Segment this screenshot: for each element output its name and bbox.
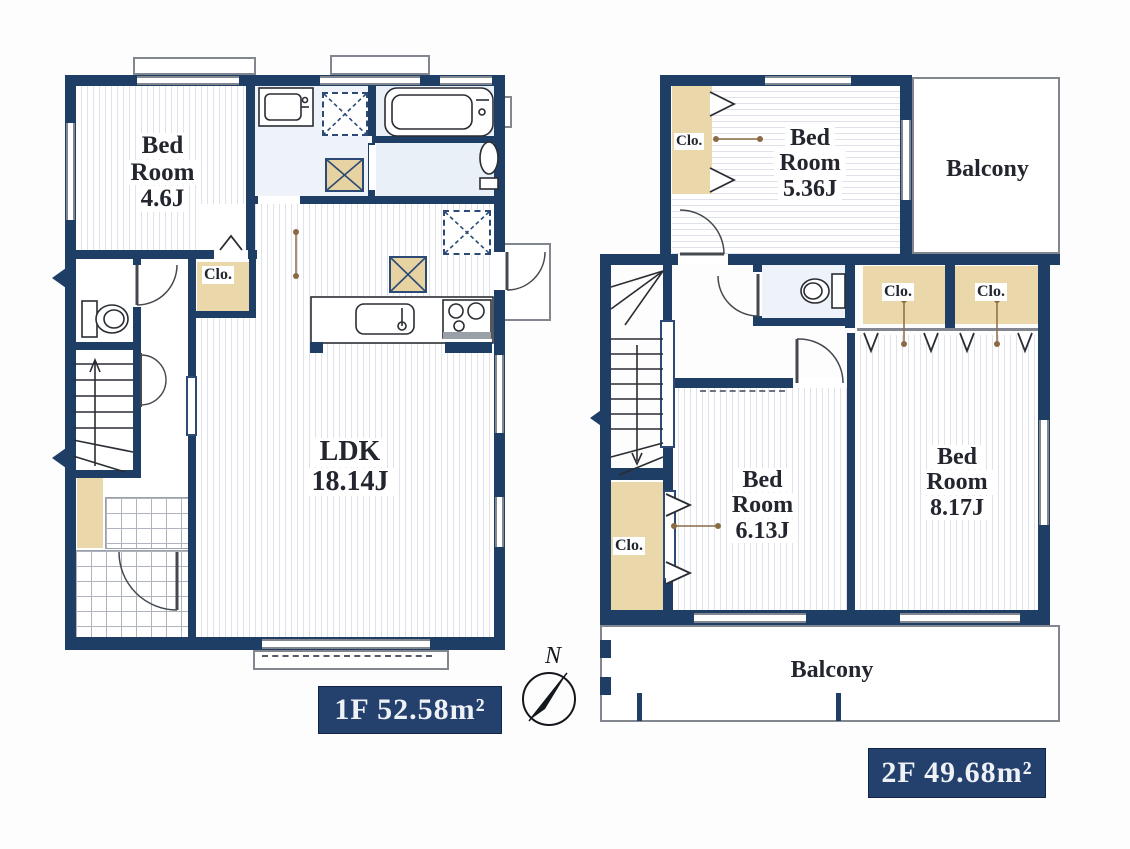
floor-hatch-x-icon: [389, 256, 427, 293]
door-opening: [494, 252, 505, 290]
shoe-cabinet: [77, 473, 103, 548]
room-label-line: 6.13J: [731, 519, 795, 543]
balcony-post: [637, 693, 642, 721]
double-door-arc: [139, 351, 167, 409]
kitchen-counter-icon: [310, 296, 494, 346]
counter-base: [310, 342, 323, 353]
wall: [600, 677, 611, 695]
wall: [188, 259, 196, 650]
closet-label-2f-top: Clo.: [674, 133, 704, 150]
room-label-line: 4.6J: [136, 186, 190, 212]
room-label-bedroom-1f: Bed Room 4.6J: [100, 133, 225, 212]
window: [440, 76, 492, 85]
door-arc: [793, 333, 847, 387]
wall: [600, 640, 611, 658]
folding-door-icon: [1016, 331, 1034, 355]
lavatory-icon: [477, 138, 501, 192]
vent-icon: [52, 268, 66, 288]
closet-label-2f-bottom: Clo.: [613, 537, 645, 555]
room-label-bedroom613: Bed Room 6.13J: [705, 468, 820, 543]
stairs-icon: [73, 348, 133, 472]
folding-door-icon: [708, 166, 738, 194]
door-arc: [505, 250, 547, 292]
room-label-line: Bed: [737, 468, 787, 492]
folding-door-icon: [664, 560, 694, 586]
floor1-area-badge: 1F 52.58m²: [318, 686, 502, 734]
closet-label-1f: Clo.: [202, 266, 234, 284]
balcony-label-top: Balcony: [925, 157, 1050, 181]
wall: [847, 333, 855, 610]
floor2-area-badge: 2F 49.68m²: [868, 748, 1046, 798]
door-arc: [676, 206, 728, 258]
balcony-label-text: Balcony: [941, 157, 1034, 181]
room-label-bedroom817: Bed Room 8.17J: [898, 445, 1016, 520]
wall: [663, 378, 793, 388]
stairs-icon: [611, 265, 663, 475]
door-arc: [117, 546, 183, 616]
closet-rail-dashes: [700, 390, 785, 392]
room-label-line: Room: [727, 493, 798, 517]
compass-label: N: [544, 643, 563, 669]
closet-label-2f-mid-right: Clo.: [975, 283, 1007, 301]
wall: [368, 83, 376, 136]
vent-icon: [52, 448, 66, 468]
floorplan: Bed Room 4.6J Clo. LDK 18.14J 1F 52.58m²…: [0, 0, 1130, 849]
folding-door-icon: [664, 492, 694, 518]
room-label-ldk: LDK 18.14J: [285, 438, 415, 496]
washer-x-icon: [322, 92, 368, 136]
folding-door-icon: [862, 331, 880, 355]
balcony-post: [836, 693, 841, 721]
entrance-tile-floor: [105, 497, 192, 549]
vent-icon: [590, 408, 604, 428]
wall: [600, 254, 611, 625]
closet-label-2f-mid-left: Clo.: [882, 283, 914, 301]
door-arc: [718, 272, 762, 318]
sliding-door: [186, 376, 197, 436]
room-label-line: 8.17J: [925, 496, 989, 520]
floor-hatch-x-icon: [325, 158, 364, 192]
closet-front-line: [857, 328, 1038, 331]
window: [495, 497, 504, 547]
room-label-line: Room: [126, 160, 200, 186]
wall: [753, 318, 855, 326]
wall: [660, 75, 671, 265]
counter-base: [445, 342, 492, 353]
wall: [249, 259, 256, 316]
balcony-label-bottom: Balcony: [772, 658, 892, 682]
eaves-outline: [133, 57, 256, 75]
door-axis-marker: [899, 296, 909, 348]
window: [262, 639, 430, 649]
window: [900, 613, 1020, 623]
toilet-icon: [798, 271, 848, 313]
sink-icon: [258, 87, 314, 127]
window: [320, 76, 420, 85]
folding-door-icon: [922, 331, 940, 355]
folding-door-icon: [708, 90, 738, 118]
door-opening: [369, 145, 375, 190]
wall: [600, 254, 1060, 265]
room-label-line: 5.36J: [778, 177, 842, 201]
wall: [65, 75, 505, 86]
wall: [246, 75, 255, 259]
room-label-line: Room: [774, 151, 845, 175]
door-axis-marker: [992, 296, 1002, 348]
room-label-line: LDK: [315, 438, 386, 467]
room-label-line: Bed: [137, 133, 189, 159]
room-label-line: 18.14J: [307, 468, 394, 497]
wall: [196, 311, 256, 318]
room-label-line: Bed: [785, 126, 835, 150]
bathtub-icon: [383, 86, 495, 138]
terrace-dashes: [262, 655, 432, 657]
toilet-icon: [80, 293, 132, 345]
window: [495, 355, 504, 433]
room-label-line: Bed: [932, 445, 982, 469]
balcony-label-text: Balcony: [786, 658, 879, 682]
eaves-outline: [330, 55, 430, 75]
window: [137, 76, 239, 85]
folding-door-icon: [958, 331, 976, 355]
wall: [945, 254, 955, 328]
door-arc: [135, 263, 181, 309]
window: [901, 120, 911, 200]
window: [694, 613, 806, 623]
terrace-step-outline: [253, 650, 449, 670]
room-label-line: Room: [921, 470, 992, 494]
window: [1039, 420, 1049, 525]
compass-icon: N: [515, 643, 585, 729]
window: [66, 123, 75, 220]
washer-x-icon: [443, 210, 491, 255]
room-label-bedroom536: Bed Room 5.36J: [752, 126, 868, 201]
door-axis-marker: [291, 228, 301, 280]
folding-door-icon: [218, 234, 244, 252]
window: [765, 76, 851, 85]
door-opening: [258, 196, 300, 204]
